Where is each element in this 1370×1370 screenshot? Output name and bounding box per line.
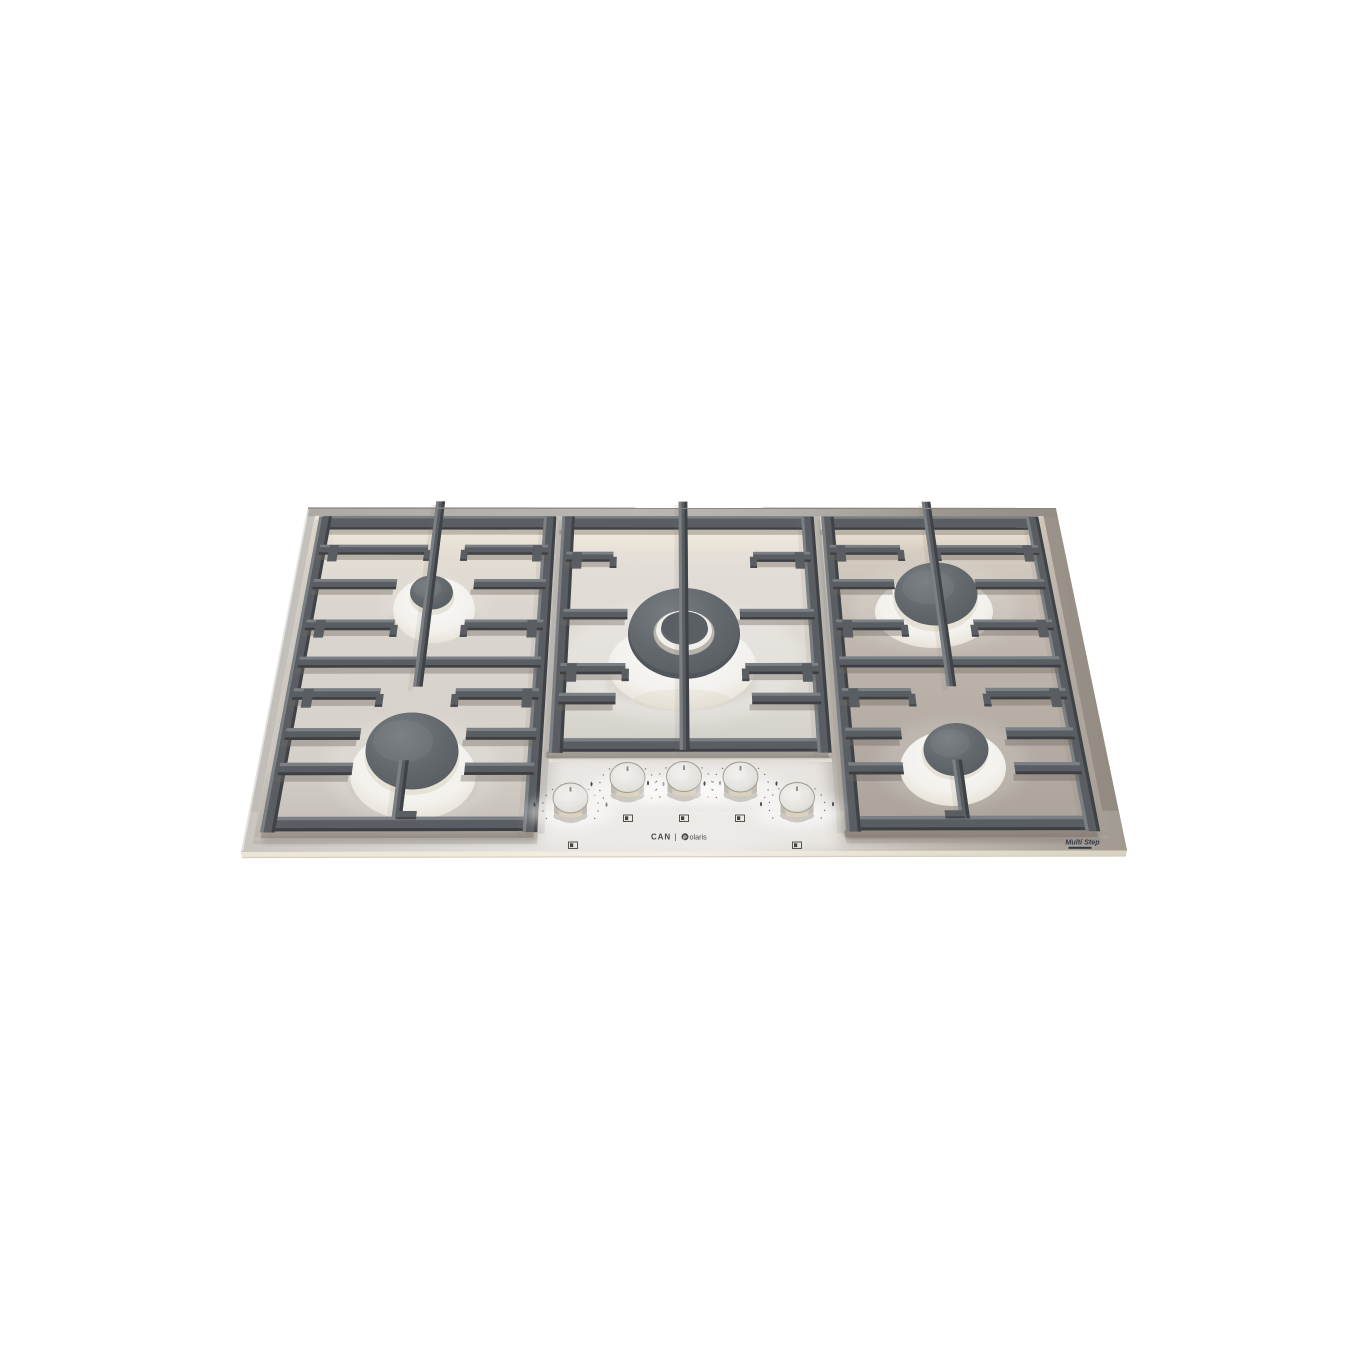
svg-text:olaris: olaris	[690, 833, 708, 842]
svg-text:P: P	[683, 835, 687, 841]
svg-text:Multi Step: Multi Step	[1065, 838, 1100, 847]
svg-text:|: |	[675, 833, 677, 842]
svg-text:CAN: CAN	[651, 833, 671, 842]
